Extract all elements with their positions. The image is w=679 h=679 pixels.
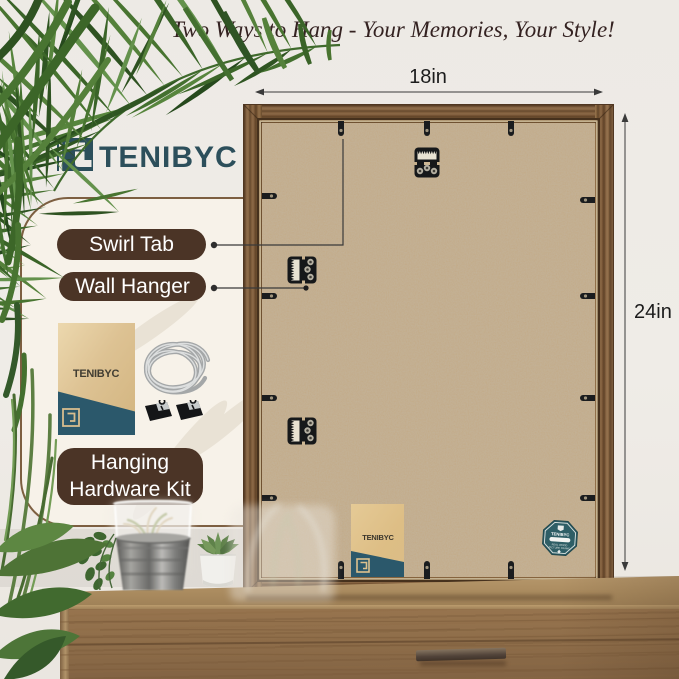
svg-text:TENIBYC: TENIBYC bbox=[362, 533, 394, 542]
